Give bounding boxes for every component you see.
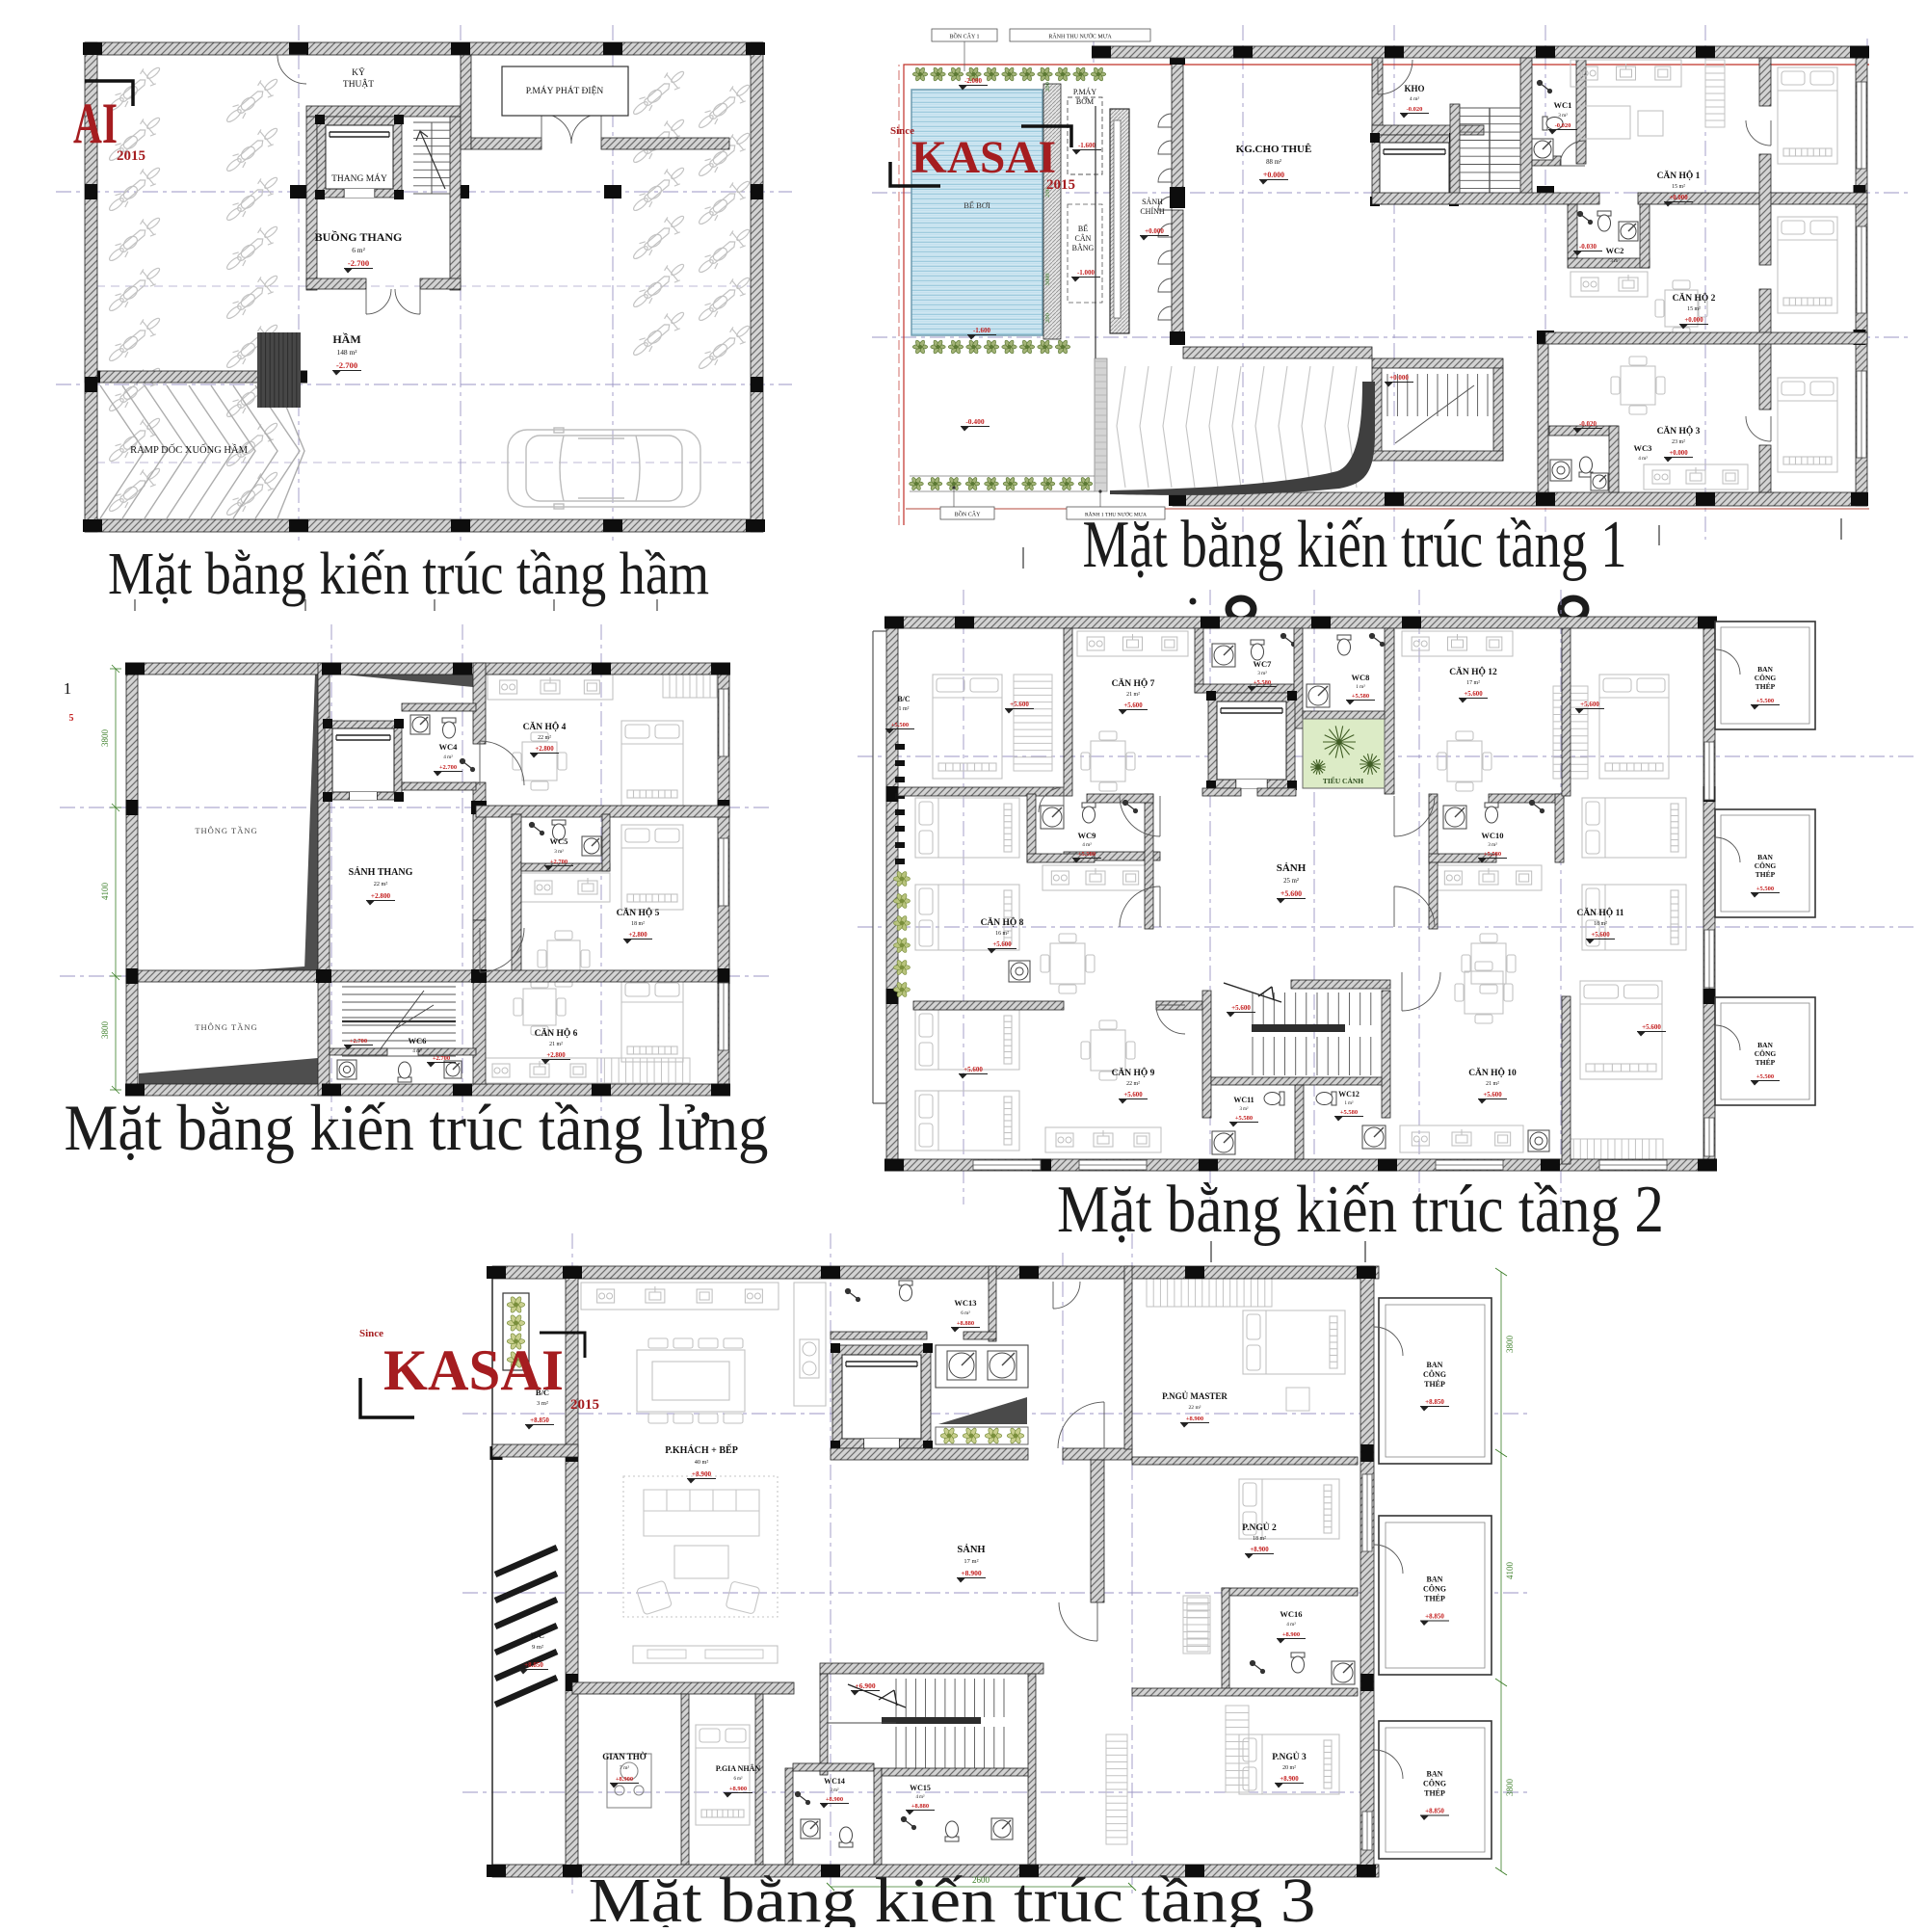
svg-text:BAN: BAN	[1427, 1575, 1443, 1584]
svg-text:WC4: WC4	[439, 742, 459, 752]
svg-text:THÉP: THÉP	[1424, 1379, 1445, 1389]
svg-text:THÉP: THÉP	[1424, 1594, 1445, 1603]
svg-text:4 m²: 4 m²	[1638, 456, 1648, 462]
svg-text:+8.900: +8.900	[1186, 1416, 1203, 1422]
svg-text:4100: 4100	[1505, 1562, 1515, 1580]
svg-text:+0.000: +0.000	[1669, 195, 1688, 201]
svg-text:+8.850: +8.850	[1425, 1808, 1444, 1815]
svg-text:+0.000: +0.000	[1145, 227, 1164, 235]
svg-text:-0.020: -0.020	[1407, 106, 1423, 113]
svg-text:+2.800: +2.800	[535, 746, 554, 753]
svg-text:WC3: WC3	[1634, 443, 1652, 453]
svg-text:+5.600: +5.600	[1280, 889, 1302, 898]
svg-text:Mặt bằng kiến trúc tầng 3: Mặt bằng kiến trúc tầng 3	[589, 1866, 1316, 1927]
svg-text:+2.800: +2.800	[546, 1052, 566, 1059]
svg-text:88 m²: 88 m²	[1266, 159, 1281, 166]
svg-text:THANG MÁY: THANG MÁY	[331, 172, 387, 184]
svg-text:+5.600: +5.600	[1483, 1092, 1502, 1098]
svg-text:3800: 3800	[100, 729, 110, 748]
svg-text:BỂ: BỂ	[1078, 224, 1088, 233]
svg-text:+0.000: +0.000	[1669, 450, 1688, 457]
svg-text:15 m²: 15 m²	[1687, 306, 1701, 312]
svg-text:5: 5	[69, 713, 74, 724]
svg-text:9 m²: 9 m²	[532, 1644, 543, 1651]
svg-text:AI: AI	[73, 92, 118, 155]
svg-text:4 m²: 4 m²	[1410, 96, 1420, 102]
svg-text:+8.900: +8.900	[1280, 1776, 1299, 1783]
svg-text:Since: Since	[359, 1328, 383, 1339]
svg-text:CÂN: CÂN	[1075, 233, 1092, 243]
svg-text:+8.900: +8.900	[729, 1786, 747, 1792]
svg-text:-2.700: -2.700	[336, 360, 357, 370]
svg-text:1 m²: 1 m²	[1356, 684, 1365, 690]
svg-text:+5.580: +5.580	[1340, 1109, 1358, 1116]
svg-text:+8.900: +8.900	[692, 1470, 712, 1478]
svg-text:-0.020: -0.020	[1555, 122, 1571, 129]
svg-text:Mặt bằng kiến trúc tầng 1: Mặt bằng kiến trúc tầng 1	[1083, 508, 1627, 582]
svg-text:+5.600: +5.600	[1464, 691, 1483, 698]
svg-text:-1.000: -1.000	[1077, 269, 1095, 277]
svg-text:22 m²: 22 m²	[374, 881, 388, 887]
svg-text:-1.600: -1.600	[973, 327, 991, 334]
svg-text:WC16: WC16	[1280, 1609, 1302, 1619]
svg-text:+5.580: +5.580	[1235, 1115, 1253, 1122]
svg-text:CHÍNH: CHÍNH	[1140, 206, 1165, 216]
svg-text:KỸ: KỸ	[352, 66, 365, 78]
svg-text:+5.600: +5.600	[1123, 1092, 1143, 1098]
svg-text:THÉP: THÉP	[1755, 681, 1776, 691]
svg-text:4 m²: 4 m²	[915, 1794, 925, 1800]
svg-text:BỒN CÂY 1: BỒN CÂY 1	[949, 33, 979, 40]
svg-text:WC1: WC1	[1554, 100, 1572, 110]
svg-text:25 m²: 25 m²	[1283, 878, 1299, 885]
svg-text:+5.600: +5.600	[1231, 1004, 1251, 1012]
svg-text:BỒN CÂY: BỒN CÂY	[955, 511, 982, 518]
svg-text:148 m²: 148 m²	[336, 348, 357, 357]
svg-text:CÔNG: CÔNG	[1755, 1048, 1777, 1058]
svg-text:CÔNG: CÔNG	[1423, 1779, 1446, 1788]
svg-text:6 m²: 6 m²	[733, 1776, 743, 1782]
svg-text:+8.850: +8.850	[530, 1416, 549, 1424]
svg-text:BƠM: BƠM	[1076, 97, 1094, 106]
svg-text:18 m²: 18 m²	[1594, 921, 1607, 927]
svg-text:BAN: BAN	[1427, 1361, 1443, 1369]
svg-text:17 m²: 17 m²	[963, 1558, 978, 1565]
svg-text:BUỒNG THANG: BUỒNG THANG	[315, 229, 403, 244]
svg-text:+8.900: +8.900	[1250, 1547, 1269, 1553]
svg-text:+8.900: +8.900	[1282, 1631, 1300, 1638]
svg-text:BẰNG: BẰNG	[1072, 243, 1095, 252]
svg-text:4100: 4100	[100, 883, 110, 901]
svg-text:+5.600: +5.600	[1123, 702, 1143, 709]
svg-text:4 m²: 4 m²	[443, 754, 453, 760]
svg-text:P.KHÁCH + BẾP: P.KHÁCH + BẾP	[665, 1443, 738, 1456]
svg-text:WC14: WC14	[824, 1777, 845, 1786]
svg-text:HẦM: HẦM	[332, 331, 360, 346]
svg-text:THÔNG TẦNG: THÔNG TẦNG	[195, 826, 257, 835]
svg-text:+2.800: +2.800	[371, 892, 391, 900]
svg-text:+5.580: +5.580	[1078, 851, 1095, 858]
svg-text:2015: 2015	[117, 148, 145, 164]
svg-text:-1.600: -1.600	[1078, 142, 1096, 149]
svg-text:3800: 3800	[1505, 1336, 1515, 1354]
svg-text:+0.000: +0.000	[1684, 317, 1703, 324]
svg-text:+5.600: +5.600	[1591, 932, 1610, 939]
svg-text:+8.900: +8.900	[616, 1776, 633, 1783]
svg-text:-0.030: -0.030	[1579, 243, 1597, 251]
svg-text:+2.700: +2.700	[433, 1055, 450, 1062]
svg-text:22 m²: 22 m²	[538, 735, 551, 741]
svg-text:18 m²: 18 m²	[1253, 1536, 1266, 1542]
svg-text:WC13: WC13	[954, 1298, 976, 1308]
svg-text:SẢNH: SẢNH	[1277, 862, 1307, 874]
svg-text:P.NGỦ 3: P.NGỦ 3	[1272, 1751, 1307, 1762]
svg-text:P.MÁY PHÁT ĐIỆN: P.MÁY PHÁT ĐIỆN	[526, 85, 604, 96]
svg-text:WC2: WC2	[1606, 246, 1624, 255]
svg-text:P.GIA NHÂN: P.GIA NHÂN	[716, 1763, 761, 1773]
svg-text:3800: 3800	[1505, 1779, 1515, 1797]
svg-text:BAN: BAN	[1757, 665, 1773, 674]
svg-text:3 m²: 3 m²	[554, 849, 564, 855]
svg-text:KG.CHO THUÊ: KG.CHO THUÊ	[1236, 144, 1312, 155]
svg-text:Mặt bằng kiến trúc tầng 2: Mặt bằng kiến trúc tầng 2	[1057, 1173, 1664, 1247]
svg-text:+2.700: +2.700	[439, 764, 457, 771]
svg-text:WC15: WC15	[910, 1784, 931, 1792]
svg-text:+2.800: +2.800	[628, 932, 647, 939]
svg-text:3 m²: 3 m²	[1558, 113, 1568, 119]
svg-text:3 m²: 3 m²	[1488, 842, 1497, 848]
svg-text:THÉP: THÉP	[1755, 1057, 1776, 1067]
svg-text:P.NGỦ MASTER: P.NGỦ MASTER	[1162, 1391, 1227, 1401]
svg-text:RÃNH THU NƯỚC MƯA: RÃNH THU NƯỚC MƯA	[1048, 33, 1112, 40]
svg-text:WC9: WC9	[1078, 831, 1096, 840]
svg-text:WC8: WC8	[1352, 673, 1370, 682]
svg-text:+5.500: +5.500	[891, 722, 909, 728]
svg-text:SẢNH THANG: SẢNH THANG	[349, 866, 413, 878]
svg-text:18 m²: 18 m²	[631, 921, 645, 927]
svg-text:6 m²: 6 m²	[961, 1310, 970, 1316]
svg-text:21 m²: 21 m²	[549, 1042, 563, 1047]
svg-text:22 m²: 22 m²	[1126, 1081, 1140, 1087]
svg-text:THÉP: THÉP	[1755, 869, 1776, 879]
svg-text:+0.000: +0.000	[1389, 374, 1409, 382]
svg-text:P.MÁY: P.MÁY	[1073, 87, 1096, 96]
svg-text:20 m²: 20 m²	[1282, 1765, 1296, 1771]
svg-text:+2.700: +2.700	[550, 859, 568, 865]
svg-text:+5.500: +5.500	[1756, 1073, 1774, 1080]
svg-text:+5.600: +5.600	[992, 941, 1012, 948]
svg-text:+5.580: +5.580	[1254, 679, 1271, 686]
svg-text:+8.900: +8.900	[826, 1796, 843, 1803]
svg-text:4 m²: 4 m²	[412, 1048, 422, 1054]
svg-text:GIAN THỜ: GIAN THỜ	[602, 1752, 647, 1761]
svg-text:-0.020: -0.020	[1579, 420, 1597, 428]
svg-text:WC7: WC7	[1254, 659, 1273, 669]
svg-text:1 m²: 1 m²	[899, 706, 910, 712]
svg-text:21 m²: 21 m²	[1486, 1081, 1499, 1087]
svg-text:16 m²: 16 m²	[995, 931, 1009, 937]
svg-text:THUẬT: THUẬT	[343, 78, 374, 90]
svg-text:4 m²: 4 m²	[1082, 842, 1092, 848]
svg-text:RAMP DỐC XUỐNG HẦM: RAMP DỐC XUỐNG HẦM	[130, 443, 248, 456]
svg-text:WC6: WC6	[409, 1036, 427, 1045]
svg-text:+2.700: +2.700	[350, 1038, 367, 1045]
svg-text:200: 200	[1044, 313, 1051, 323]
svg-text:+8.880: +8.880	[957, 1320, 974, 1327]
svg-text:-2.700: -2.700	[348, 258, 369, 268]
svg-text:-0.400: -0.400	[965, 417, 985, 426]
svg-text:CÔNG: CÔNG	[1755, 673, 1777, 682]
svg-text:+5.600: +5.600	[1580, 701, 1599, 708]
svg-text:P.NGỦ 2: P.NGỦ 2	[1242, 1522, 1277, 1533]
svg-text:BAN: BAN	[1757, 853, 1773, 861]
svg-text:+8.850: +8.850	[524, 1661, 543, 1669]
svg-text:3 m²: 3 m²	[1610, 258, 1620, 264]
svg-text:KASAI: KASAI	[383, 1338, 564, 1402]
svg-text:Mặt bằng kiến trúc tầng lửng: Mặt bằng kiến trúc tầng lửng	[65, 1091, 769, 1164]
svg-text:CÔNG: CÔNG	[1423, 1584, 1446, 1594]
svg-text:+5.580: +5.580	[1484, 851, 1501, 858]
svg-text:3000: 3000	[1044, 274, 1051, 286]
svg-text:B/C: B/C	[897, 695, 911, 703]
svg-text:3 m²: 3 m²	[830, 1787, 839, 1793]
svg-text:Mặt bằng kiến trúc tầng hầm: Mặt bằng kiến trúc tầng hầm	[108, 542, 709, 607]
svg-text:BAN: BAN	[1427, 1770, 1443, 1779]
svg-text:WC5: WC5	[550, 836, 568, 846]
svg-text:WC11: WC11	[1233, 1096, 1254, 1104]
svg-text:+5.600: +5.600	[963, 1066, 983, 1073]
svg-text:3 m²: 3 m²	[1257, 671, 1267, 676]
svg-text:+5.600: +5.600	[1010, 701, 1029, 708]
svg-text:KASAI: KASAI	[911, 132, 1056, 183]
svg-text:+8.850: +8.850	[1425, 1613, 1444, 1621]
svg-text:BAN: BAN	[1757, 1041, 1773, 1049]
svg-text:WC10: WC10	[1481, 831, 1503, 840]
svg-text:BỂ BƠI: BỂ BƠI	[963, 200, 990, 210]
svg-text:200: 200	[1044, 82, 1051, 92]
svg-text:2015: 2015	[570, 1397, 599, 1413]
svg-text:KHO: KHO	[1404, 84, 1424, 93]
svg-text:6 m²: 6 m²	[352, 246, 365, 254]
svg-text:CÔNG: CÔNG	[1423, 1369, 1446, 1379]
svg-text:1: 1	[64, 679, 72, 698]
svg-text:15 m²: 15 m²	[1672, 184, 1685, 190]
svg-text:+5.500: +5.500	[1756, 886, 1774, 892]
svg-text:3 m²: 3 m²	[1239, 1106, 1249, 1112]
svg-text:7 m²: 7 m²	[620, 1765, 630, 1771]
svg-text:SẢNH: SẢNH	[1142, 197, 1163, 206]
svg-text:CÔNG: CÔNG	[1755, 860, 1777, 870]
svg-text:TIỂU CẢNH: TIỂU CẢNH	[1323, 776, 1363, 785]
svg-text:23 m²: 23 m²	[1672, 439, 1685, 445]
svg-text:3800: 3800	[100, 1021, 110, 1040]
svg-text:+6.900: +6.900	[855, 1681, 875, 1690]
svg-text:+5.600: +5.600	[1642, 1023, 1661, 1031]
svg-text:2015: 2015	[1046, 177, 1075, 193]
svg-text:17 m²: 17 m²	[1466, 680, 1480, 686]
svg-text:THÉP: THÉP	[1424, 1788, 1445, 1798]
svg-text:WC12: WC12	[1338, 1090, 1359, 1098]
svg-text:21 m²: 21 m²	[1126, 692, 1140, 698]
svg-text:22 m²: 22 m²	[1189, 1405, 1201, 1411]
svg-text:40 m²: 40 m²	[695, 1459, 709, 1466]
svg-text:4 m²: 4 m²	[1286, 1622, 1296, 1628]
svg-text:+8.900: +8.900	[961, 1569, 982, 1577]
svg-text:B/C: B/C	[531, 1630, 544, 1640]
svg-text:SẢNH: SẢNH	[957, 1544, 985, 1555]
svg-text:1 m²: 1 m²	[1344, 1100, 1354, 1106]
svg-text:+0.000: +0.000	[1263, 171, 1284, 179]
svg-text:+5.500: +5.500	[1756, 698, 1774, 704]
svg-text:-2.000: -2.000	[964, 77, 983, 85]
svg-text:+5.580: +5.580	[1352, 693, 1369, 700]
svg-text:THÔNG TẦNG: THÔNG TẦNG	[195, 1022, 257, 1032]
svg-text:+8.880: +8.880	[911, 1803, 929, 1810]
svg-text:+8.850: +8.850	[1425, 1398, 1444, 1406]
